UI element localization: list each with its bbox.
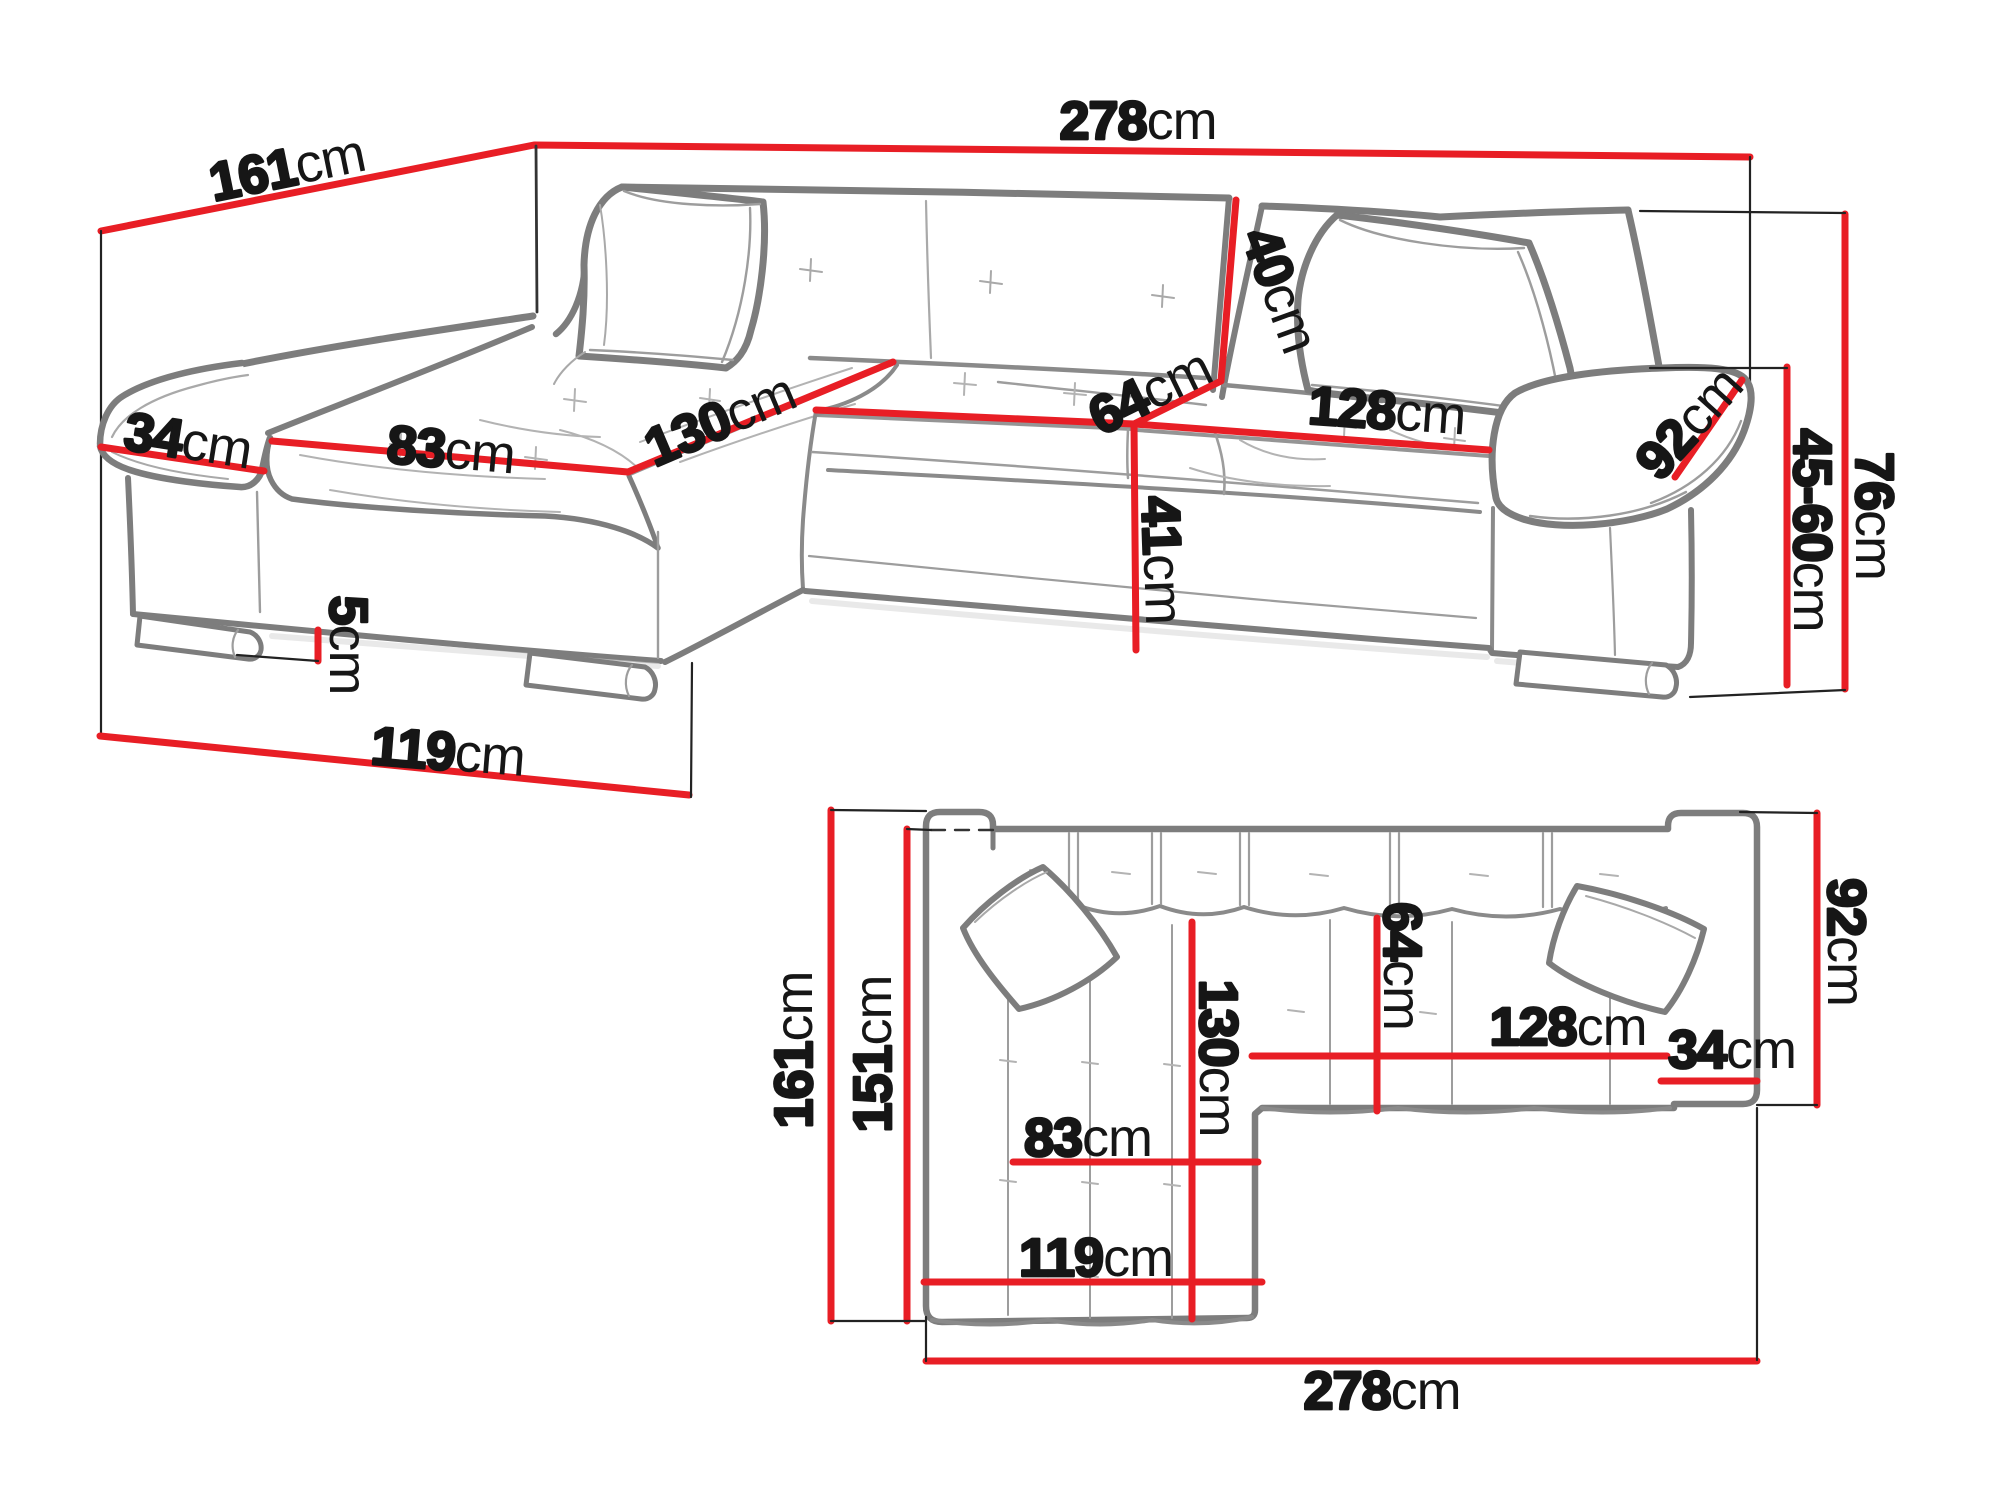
svg-text:161cm: 161cm	[204, 123, 370, 213]
svg-text:161cm: 161cm	[764, 971, 824, 1128]
svg-text:119cm: 119cm	[369, 716, 527, 788]
svg-text:128cm: 128cm	[1489, 997, 1646, 1057]
svg-text:83cm: 83cm	[385, 415, 518, 486]
svg-text:45-60cm: 45-60cm	[1782, 428, 1842, 631]
svg-text:128cm: 128cm	[1307, 376, 1468, 447]
svg-text:119cm: 119cm	[1019, 1228, 1173, 1288]
svg-text:64cm: 64cm	[1372, 902, 1432, 1030]
svg-text:130cm: 130cm	[636, 362, 804, 479]
svg-text:83cm: 83cm	[1024, 1108, 1152, 1168]
svg-text:278cm: 278cm	[1303, 1361, 1460, 1421]
svg-text:278cm: 278cm	[1059, 91, 1216, 151]
svg-text:34cm: 34cm	[1668, 1020, 1796, 1080]
svg-text:5cm: 5cm	[318, 595, 378, 694]
svg-text:130cm: 130cm	[1188, 979, 1248, 1136]
svg-text:151cm: 151cm	[843, 975, 903, 1132]
svg-text:92cm: 92cm	[1816, 878, 1876, 1006]
svg-text:76cm: 76cm	[1844, 452, 1904, 580]
svg-text:41cm: 41cm	[1130, 495, 1194, 625]
